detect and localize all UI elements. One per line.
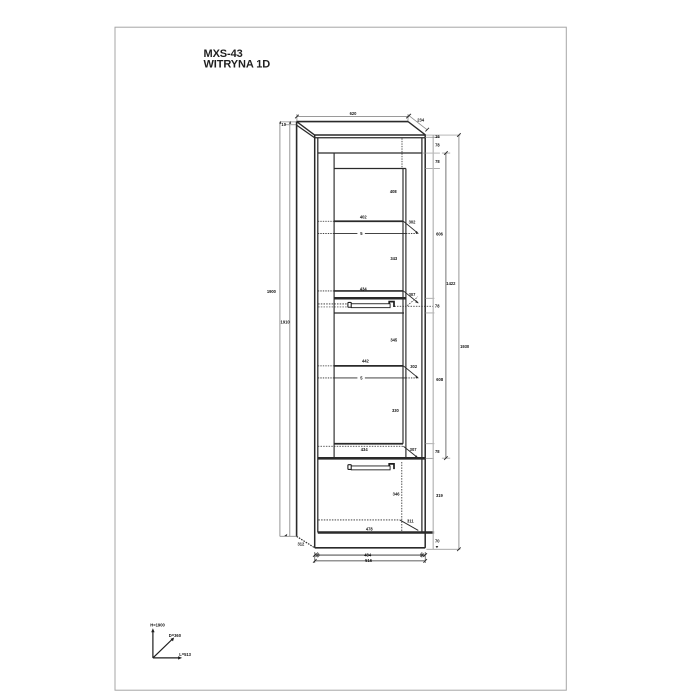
svg-text:484: 484 [364, 552, 372, 557]
svg-text:302: 302 [410, 364, 418, 369]
svg-text:1910: 1910 [281, 320, 291, 325]
svg-text:606: 606 [436, 232, 444, 237]
svg-text:16: 16 [435, 134, 440, 139]
svg-text:78: 78 [435, 143, 440, 148]
svg-text:234: 234 [417, 118, 425, 123]
svg-text:78: 78 [435, 159, 440, 164]
svg-text:16: 16 [420, 552, 425, 557]
svg-text:1422: 1422 [446, 281, 456, 286]
svg-text:516: 516 [365, 558, 373, 563]
svg-text:H=1900: H=1900 [150, 622, 165, 627]
svg-text:307: 307 [409, 292, 417, 297]
svg-text:D=360: D=360 [169, 633, 182, 638]
svg-text:330: 330 [392, 408, 400, 413]
svg-text:343: 343 [390, 256, 398, 261]
svg-text:402: 402 [360, 215, 368, 220]
svg-text:18: 18 [315, 552, 320, 557]
svg-text:408: 408 [390, 189, 398, 194]
svg-text:WITRYNA 1D: WITRYNA 1D [204, 59, 271, 71]
svg-text:1930: 1930 [460, 344, 470, 349]
svg-text:302: 302 [409, 220, 417, 225]
svg-text:70: 70 [435, 539, 440, 544]
svg-text:307: 307 [410, 447, 418, 452]
svg-text:442: 442 [362, 358, 370, 363]
svg-text:311: 311 [407, 519, 414, 524]
svg-text:345: 345 [390, 338, 398, 343]
svg-text:620: 620 [350, 111, 358, 116]
svg-text:78: 78 [435, 303, 440, 308]
svg-text:478: 478 [366, 526, 374, 531]
svg-text:78: 78 [435, 449, 440, 454]
svg-text:346: 346 [393, 491, 401, 496]
svg-text:434: 434 [361, 447, 369, 452]
svg-text:L=513: L=513 [179, 652, 191, 657]
svg-text:10: 10 [281, 122, 286, 127]
svg-text:608: 608 [436, 377, 444, 382]
svg-text:319: 319 [436, 493, 444, 498]
svg-text:312: 312 [297, 541, 305, 546]
svg-text:434: 434 [360, 287, 368, 292]
svg-text:1900: 1900 [267, 289, 277, 294]
